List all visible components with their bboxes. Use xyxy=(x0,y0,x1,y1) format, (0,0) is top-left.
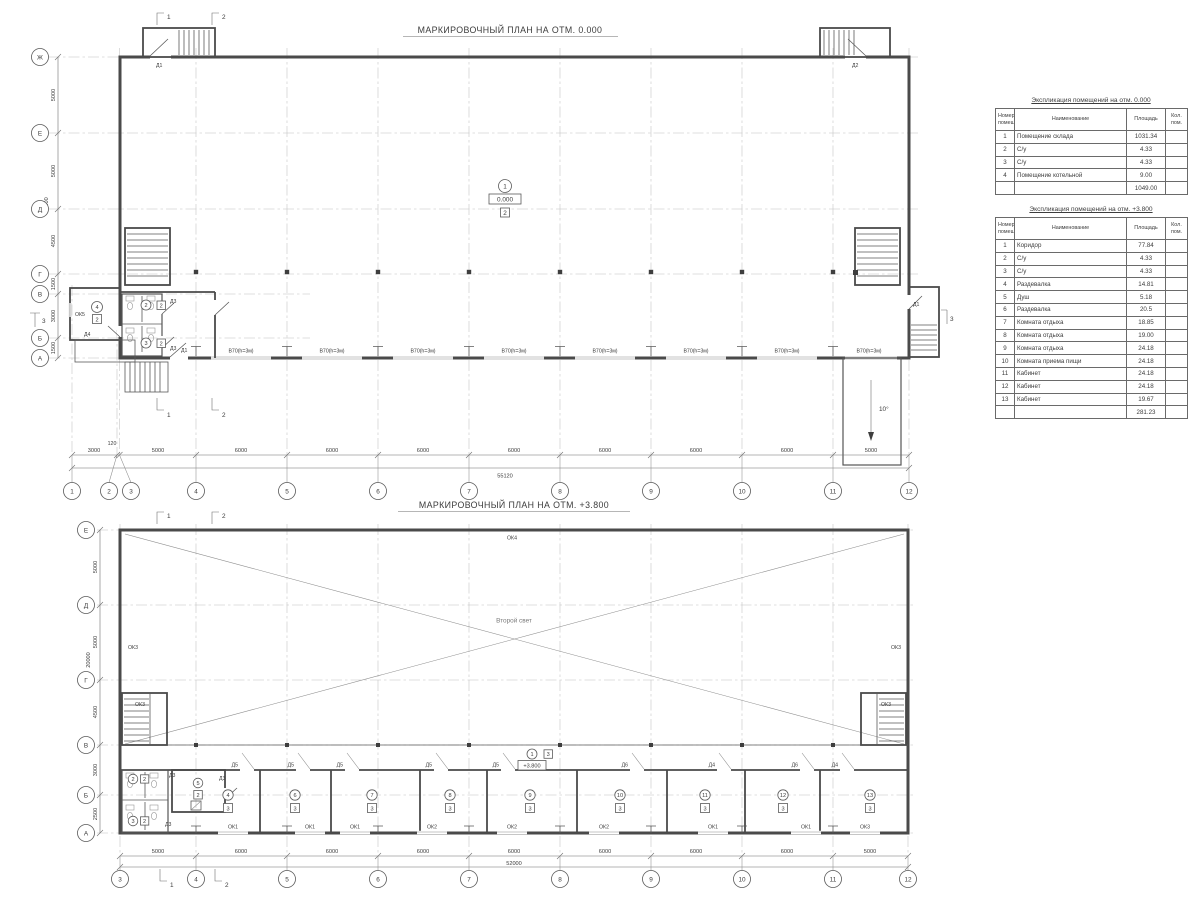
plan2-row-bubbles: Е Д Г В Б А xyxy=(78,522,95,842)
cell-num: 3 xyxy=(996,156,1015,169)
col-header: Кол. пом. xyxy=(1166,109,1188,131)
cell-num: 6 xyxy=(996,303,1015,316)
window-label: ОК2 xyxy=(507,824,517,830)
floor-type-tag: 2 xyxy=(160,303,163,309)
door-label: Д6 xyxy=(622,763,629,769)
grid-bubble-label: 4 xyxy=(194,876,198,883)
door-label: Д5 xyxy=(493,763,500,769)
room-number: 8 xyxy=(448,793,451,799)
door-label: Д3 xyxy=(165,822,172,828)
cell-name: С/у xyxy=(1015,265,1127,278)
cell-name: Помещение склада xyxy=(1015,131,1127,144)
section-marker-label: 3 xyxy=(42,318,46,325)
window-label: ОК3 xyxy=(128,645,138,651)
gate-label: В70(h=3м) xyxy=(856,348,881,354)
room-schedule-0000: Экспликация помещений на отм. 0.000 Номе… xyxy=(995,97,1187,195)
cell-count xyxy=(1166,367,1188,380)
cell-num: 2 xyxy=(996,252,1015,265)
plan1-title: МАРКИРОВОЧНЫЙ ПЛАН НА ОТМ. 0.000 xyxy=(418,24,603,35)
table-header-row: Номер помещ. Наименование Площадь Кол. п… xyxy=(996,109,1188,131)
col-header: Кол. пом. xyxy=(1166,218,1188,240)
table-row: 2С/у4.33 xyxy=(996,252,1188,265)
window-label: ОК4 xyxy=(507,536,517,542)
void-label: Второй свет xyxy=(496,617,532,625)
plan2-corridor-tag: 1 3 +3.800 xyxy=(518,749,553,770)
cell-count xyxy=(1166,316,1188,329)
gate-label: В70(h=3м) xyxy=(592,348,617,354)
grid-bubble-label: 8 xyxy=(558,488,562,495)
room-number: 9 xyxy=(528,793,531,799)
door-label: Д1 xyxy=(181,348,188,354)
cell-count xyxy=(1166,278,1188,291)
cell-area: 77.84 xyxy=(1127,240,1166,253)
cell-name: С/у xyxy=(1015,143,1127,156)
plan1-grid-lines xyxy=(49,48,920,455)
grid-bubble-label: 3 xyxy=(118,876,122,883)
cell-area: 1031.34 xyxy=(1127,131,1166,144)
dim-label: 5000 xyxy=(864,849,876,855)
grid-bubble-label: 2 xyxy=(107,488,111,495)
cell-area: 14.81 xyxy=(1127,278,1166,291)
room-number: 11 xyxy=(702,793,708,799)
grid-bubble-label: Д xyxy=(84,602,89,609)
cell-area: 19.00 xyxy=(1127,329,1166,342)
col-header: Площадь xyxy=(1127,109,1166,131)
room-number: 10 xyxy=(617,793,623,799)
table-row: 12Кабинет24.18 xyxy=(996,380,1188,393)
cell-name: Помещение котельной xyxy=(1015,169,1127,182)
window-label: ОК3 xyxy=(135,702,145,708)
cell-num: 9 xyxy=(996,342,1015,355)
cell-count xyxy=(1166,303,1188,316)
cell-count xyxy=(1166,156,1188,169)
cell-total-area: 1049.00 xyxy=(1127,182,1166,195)
floor-type-tag: 2 xyxy=(143,777,146,783)
room-number: 2 xyxy=(131,777,134,783)
table-row: 10Комната приема пищи24.18 xyxy=(996,355,1188,368)
elevation-label: 0.000 xyxy=(497,197,513,204)
plan1-column-bubbles: 1 2 3 4 5 6 7 8 9 10 11 12 xyxy=(64,483,918,500)
cell-name: С/у xyxy=(1015,156,1127,169)
floor-type-tag: 3 xyxy=(226,806,229,812)
grid-bubble-label: Б xyxy=(84,792,88,799)
table-row: 6Раздевалка20.5 xyxy=(996,303,1188,316)
dim-label: 2500 xyxy=(93,808,99,820)
floor-type-tag: 2 xyxy=(95,317,98,323)
dim-label: 6000 xyxy=(235,849,247,855)
floor-type-tag: 3 xyxy=(448,806,451,812)
room-number: 7 xyxy=(370,793,373,799)
dim-label: 5000 xyxy=(152,448,164,454)
door-label: Д6 xyxy=(792,763,799,769)
dim-label: 3000 xyxy=(88,448,100,454)
grid-bubble-label: А xyxy=(84,830,89,837)
window-label: ОК3 xyxy=(891,645,901,651)
dim-label: 6000 xyxy=(235,448,247,454)
window-label: ОК1 xyxy=(350,824,360,830)
window-label: ОК1 xyxy=(708,824,718,830)
schedule-table: Номер помещ. Наименование Площадь Кол. п… xyxy=(995,108,1188,195)
dim-label: 5000 xyxy=(93,636,99,648)
grid-bubble-label: Г xyxy=(38,271,42,278)
room-number: 4 xyxy=(226,793,229,799)
floor-type-tag: 3 xyxy=(547,752,550,758)
grid-bubble-label: 5 xyxy=(285,488,289,495)
window-label: ОК1 xyxy=(305,824,315,830)
dim-label: 6000 xyxy=(508,448,520,454)
floor-type-tag: 2 xyxy=(196,793,199,799)
window-label: ОК5 xyxy=(75,312,85,318)
plan2-window-labels: ОК4 ОК3 ОК3 ОК3 ОК3 ОК1 ОК1 ОК1 ОК2 ОК2 … xyxy=(128,536,901,831)
room-number: 2 xyxy=(144,303,147,309)
table-header-row: Номер помещ. Наименование Площадь Кол. п… xyxy=(996,218,1188,240)
grid-bubble-label: Г xyxy=(84,677,88,684)
table-row: 9Комната отдыха24.18 xyxy=(996,342,1188,355)
section-marker-label: 1 xyxy=(167,14,171,21)
gate-label: В70(h=3м) xyxy=(683,348,708,354)
section-marker-label: 2 xyxy=(225,882,229,889)
plan1-row-bubbles: Ж Е Д Г В Б А xyxy=(32,49,49,367)
cell-name: Комната отдыха xyxy=(1015,342,1127,355)
room-number: 1 xyxy=(530,752,533,758)
cell-num: 11 xyxy=(996,367,1015,380)
gate-label: В70(h=3м) xyxy=(228,348,253,354)
cell-count xyxy=(1166,406,1188,419)
schedule-title: Экспликация помещений на отм. 0.000 xyxy=(995,97,1187,104)
window-label: ОК3 xyxy=(881,702,891,708)
floor-type-tag: 3 xyxy=(703,806,706,812)
room-number: 12 xyxy=(780,793,786,799)
cell-name: Комната отдыха xyxy=(1015,329,1127,342)
room-number: 3 xyxy=(131,819,134,825)
grid-bubble-label: 10 xyxy=(738,876,746,883)
floor-type-tag: 2 xyxy=(503,210,507,217)
schedule-title: Экспликация помещений на отм. +3.800 xyxy=(995,206,1187,213)
cell-area: 4.33 xyxy=(1127,143,1166,156)
door-label: Д5 xyxy=(426,763,433,769)
grid-bubble-label: 6 xyxy=(376,876,380,883)
floor-type-tag: 3 xyxy=(293,806,296,812)
cell-name: Раздевалка xyxy=(1015,278,1127,291)
dim-label: 5000 xyxy=(93,561,99,573)
door-label: Д5 xyxy=(288,763,295,769)
cell-area: 9.00 xyxy=(1127,169,1166,182)
dim-label: 3000 xyxy=(51,310,57,322)
window-label: ОК1 xyxy=(228,824,238,830)
dim-total-label: 52000 xyxy=(506,861,522,867)
cell-area: 4.33 xyxy=(1127,252,1166,265)
cell-name: Кабинет xyxy=(1015,380,1127,393)
cell-num: 4 xyxy=(996,278,1015,291)
cell-name: Коридор xyxy=(1015,240,1127,253)
table-row: 11Кабинет24.18 xyxy=(996,367,1188,380)
plan2-left-dimensions: 5000 5000 4500 3000 2500 20000 Е Д Г В Б… xyxy=(78,522,104,842)
cell-num: 1 xyxy=(996,240,1015,253)
cell-name: С/у xyxy=(1015,252,1127,265)
cell-count xyxy=(1166,143,1188,156)
floor-type-tag: 2 xyxy=(143,819,146,825)
cell-area: 19.67 xyxy=(1127,393,1166,406)
window-label: ОК1 xyxy=(801,824,811,830)
cell-count xyxy=(1166,393,1188,406)
dim-total-label: 55120 xyxy=(497,474,513,480)
plan1-bottom-dimensions: 3000 120 5000 6000 6000 6000 6000 6000 6… xyxy=(64,441,918,500)
cell-num: 4 xyxy=(996,169,1015,182)
dim-label: 6000 xyxy=(690,849,702,855)
grid-bubble-label: Б xyxy=(38,335,42,342)
floor-type-tag: 3 xyxy=(528,806,531,812)
grid-bubble-label: 10 xyxy=(738,488,746,495)
dim-label: 6000 xyxy=(781,849,793,855)
plan1-door-window-labels: Д1 Д2 Д3 Д3 Д1 Д1 Д4 ОК5 xyxy=(75,63,920,354)
door-label: Д3 xyxy=(170,299,177,305)
table-row: 2С/у4.33 xyxy=(996,143,1188,156)
dim-label: 6000 xyxy=(417,849,429,855)
room-number: 13 xyxy=(867,793,873,799)
floor-type-tag: 3 xyxy=(781,806,784,812)
cell-name xyxy=(1015,406,1127,419)
cell-area: 20.5 xyxy=(1127,303,1166,316)
section-marker-label: 2 xyxy=(222,412,226,419)
plan2-grid-lines xyxy=(97,524,915,856)
dim-label: 1500 xyxy=(51,342,57,354)
cell-area: 18.85 xyxy=(1127,316,1166,329)
dim-label: 3000 xyxy=(93,764,99,776)
section-marker-label: 1 xyxy=(167,412,171,419)
dim-label: 5000 xyxy=(152,849,164,855)
cell-count xyxy=(1166,291,1188,304)
room-number: 4 xyxy=(95,305,98,311)
plan1-right-annex xyxy=(906,287,939,357)
table-total-row: 281.23 xyxy=(996,406,1188,419)
plan2-void: Второй свет xyxy=(125,534,904,744)
section-marker-label: 2 xyxy=(222,14,226,21)
cell-count xyxy=(1166,131,1188,144)
cell-num: 7 xyxy=(996,316,1015,329)
plan1-columns xyxy=(191,270,838,356)
gate-label: В70(h=3м) xyxy=(410,348,435,354)
cell-name xyxy=(1015,182,1127,195)
dim-label: 6000 xyxy=(781,448,793,454)
grid-bubble-label: В xyxy=(38,291,42,298)
plan2-stairwells xyxy=(122,693,906,745)
dim-label: 5000 xyxy=(51,89,57,101)
dim-label: 6000 xyxy=(417,448,429,454)
door-label: Д3 xyxy=(219,776,226,782)
door-label: Д4 xyxy=(709,763,716,769)
cell-count xyxy=(1166,240,1188,253)
col-header: Номер помещ. xyxy=(996,109,1015,131)
cell-name: Комната отдыха xyxy=(1015,316,1127,329)
cell-num: 1 xyxy=(996,131,1015,144)
door-label: Д3 xyxy=(170,346,177,352)
plan1-gate-labels: В70(h=3м) В70(h=3м) В70(h=3м) В70(h=3м) … xyxy=(228,348,881,354)
table-row: 7Комната отдыха18.85 xyxy=(996,316,1188,329)
plan2-column-bubbles: 3 4 5 6 7 8 9 10 11 12 xyxy=(112,871,917,888)
door-label: Д4 xyxy=(832,763,839,769)
cell-num xyxy=(996,406,1015,419)
dim-label: 5000 xyxy=(51,165,57,177)
grid-bubble-label: 11 xyxy=(830,876,837,883)
window-label: ОК2 xyxy=(599,824,609,830)
section-marker-label: 1 xyxy=(167,513,171,520)
cell-area: 24.18 xyxy=(1127,342,1166,355)
door-label: Д1 xyxy=(156,63,163,69)
cell-area: 24.18 xyxy=(1127,380,1166,393)
dim-label: 6000 xyxy=(690,448,702,454)
cell-name: Раздевалка xyxy=(1015,303,1127,316)
cell-count xyxy=(1166,380,1188,393)
door-label: Д5 xyxy=(232,763,239,769)
grid-bubble-label: 6 xyxy=(376,488,380,495)
grid-bubble-label: 7 xyxy=(467,488,471,495)
door-label: Д1 xyxy=(913,302,920,308)
room-number: 6 xyxy=(293,793,296,799)
ramp-angle-label: 10° xyxy=(879,405,889,413)
cell-num: 13 xyxy=(996,393,1015,406)
cell-area: 4.33 xyxy=(1127,265,1166,278)
grid-bubble-label: Е xyxy=(84,527,88,534)
plan1: МАРКИРОВОЧНЫЙ ПЛАН НА ОТМ. 0.000 xyxy=(30,13,954,500)
grid-bubble-label: Е xyxy=(38,130,42,137)
gate-label: В70(h=3м) xyxy=(501,348,526,354)
cell-count xyxy=(1166,265,1188,278)
floor-type-tag: 3 xyxy=(618,806,621,812)
room-number: 1 xyxy=(503,183,507,190)
plan1-stairwells xyxy=(125,228,900,285)
floor-type-tag: 3 xyxy=(868,806,871,812)
table-row: 1Коридор77.84 xyxy=(996,240,1188,253)
cell-num: 10 xyxy=(996,355,1015,368)
dim-label: 6000 xyxy=(508,849,520,855)
room-schedule-3800: Экспликация помещений на отм. +3.800 Ном… xyxy=(995,206,1187,419)
cell-num: 3 xyxy=(996,265,1015,278)
grid-bubble-label: 5 xyxy=(285,876,289,883)
col-header: Площадь xyxy=(1127,218,1166,240)
col-header: Наименование xyxy=(1015,218,1127,240)
cell-total-area: 281.23 xyxy=(1127,406,1166,419)
dim-label: 1500 xyxy=(51,278,57,290)
cell-name: Комната приема пищи xyxy=(1015,355,1127,368)
plan2-room-row-tags: 4 3 6 3 7 3 8 3 9 3 10 3 11 3 12 3 13 3 xyxy=(223,790,875,813)
grid-bubble-label: 7 xyxy=(467,876,471,883)
grid-bubble-label: 3 xyxy=(129,488,133,495)
grid-bubble-label: А xyxy=(38,355,43,362)
table-row: 8Комната отдыха19.00 xyxy=(996,329,1188,342)
cell-num: 2 xyxy=(996,143,1015,156)
gate-label: В70(h=3м) xyxy=(774,348,799,354)
window-label: ОК3 xyxy=(860,824,870,830)
cell-name: Кабинет xyxy=(1015,367,1127,380)
cell-num: 5 xyxy=(996,291,1015,304)
cell-num: 12 xyxy=(996,380,1015,393)
grid-bubble-label: 1 xyxy=(70,488,74,495)
plan1-walls xyxy=(120,54,909,360)
col-header: Номер помещ. xyxy=(996,218,1015,240)
plan2-walls xyxy=(120,530,908,835)
elevation-label: +3.800 xyxy=(523,764,540,770)
gate-label: В70(h=3м) xyxy=(319,348,344,354)
cell-count xyxy=(1166,252,1188,265)
grid-bubble-label: 8 xyxy=(558,876,562,883)
cell-count xyxy=(1166,355,1188,368)
door-label: Д3 xyxy=(169,773,176,779)
grid-bubble-label: 4 xyxy=(194,488,198,495)
col-header: Наименование xyxy=(1015,109,1127,131)
cell-count xyxy=(1166,329,1188,342)
door-label: Д5 xyxy=(337,763,344,769)
table-row: 4Раздевалка14.81 xyxy=(996,278,1188,291)
cell-count xyxy=(1166,342,1188,355)
cell-area: 5.18 xyxy=(1127,291,1166,304)
plan2-bottom-dimensions: 5000 6000 6000 6000 6000 6000 6000 6000 … xyxy=(112,849,917,888)
window-label: ОК2 xyxy=(427,824,437,830)
grid-bubble-label: В xyxy=(84,742,88,749)
table-total-row: 1049.00 xyxy=(996,182,1188,195)
cell-num: 8 xyxy=(996,329,1015,342)
plan2: МАРКИРОВОЧНЫЙ ПЛАН НА ОТМ. +3.800 Второй… xyxy=(78,499,917,889)
table-row: 3С/у4.33 xyxy=(996,265,1188,278)
plan2-title: МАРКИРОВОЧНЫЙ ПЛАН НА ОТМ. +3.800 xyxy=(419,499,609,510)
table-row: 4Помещение котельной9.00 xyxy=(996,169,1188,182)
dim-label: 120 xyxy=(108,441,117,447)
grid-bubble-label: 9 xyxy=(649,876,653,883)
dim-label: 4500 xyxy=(51,235,57,247)
dim-label: 6000 xyxy=(326,849,338,855)
grid-bubble-label: Ж xyxy=(37,54,43,61)
cell-num xyxy=(996,182,1015,195)
room-number: 5 xyxy=(196,781,199,787)
cell-area: 4.33 xyxy=(1127,156,1166,169)
schedule-table: Номер помещ. Наименование Площадь Кол. п… xyxy=(995,217,1188,419)
cell-area: 24.18 xyxy=(1127,355,1166,368)
cell-name: Душ xyxy=(1015,291,1127,304)
cell-name: Кабинет xyxy=(1015,393,1127,406)
table-row: 3С/у4.33 xyxy=(996,156,1188,169)
table-row: 5Душ5.18 xyxy=(996,291,1188,304)
dim-label: 6000 xyxy=(599,849,611,855)
table-row: 13Кабинет19.67 xyxy=(996,393,1188,406)
section-marker-label: 1 xyxy=(170,882,174,889)
grid-bubble-label: 9 xyxy=(649,488,653,495)
grid-bubble-label: Д xyxy=(38,206,43,213)
door-label: Д4 xyxy=(84,332,91,338)
dim-label: 5000 xyxy=(865,448,877,454)
dim-label: 6000 xyxy=(599,448,611,454)
plan1-left-dimensions: 5000 5000 4500 1500 3000 1500 20000 Ж Е … xyxy=(32,49,62,367)
cell-count xyxy=(1166,182,1188,195)
dim-label: 4500 xyxy=(93,706,99,718)
table-row: 1Помещение склада1031.34 xyxy=(996,131,1188,144)
grid-bubble-label: 12 xyxy=(905,488,913,495)
drawing-sheet: МАРКИРОВОЧНЫЙ ПЛАН НА ОТМ. 0.000 xyxy=(0,0,1200,900)
room-number: 3 xyxy=(144,341,147,347)
door-label: Д2 xyxy=(852,63,859,69)
dim-total-label: 20000 xyxy=(86,652,92,668)
grid-bubble-label: 11 xyxy=(830,488,837,495)
section-marker-label: 3 xyxy=(950,316,954,323)
floor-type-tag: 2 xyxy=(160,341,163,347)
cell-count xyxy=(1166,169,1188,182)
section-marker-label: 2 xyxy=(222,513,226,520)
grid-bubble-label: 12 xyxy=(904,876,912,883)
dim-label: 6000 xyxy=(326,448,338,454)
cell-area: 24.18 xyxy=(1127,367,1166,380)
floor-type-tag: 3 xyxy=(370,806,373,812)
